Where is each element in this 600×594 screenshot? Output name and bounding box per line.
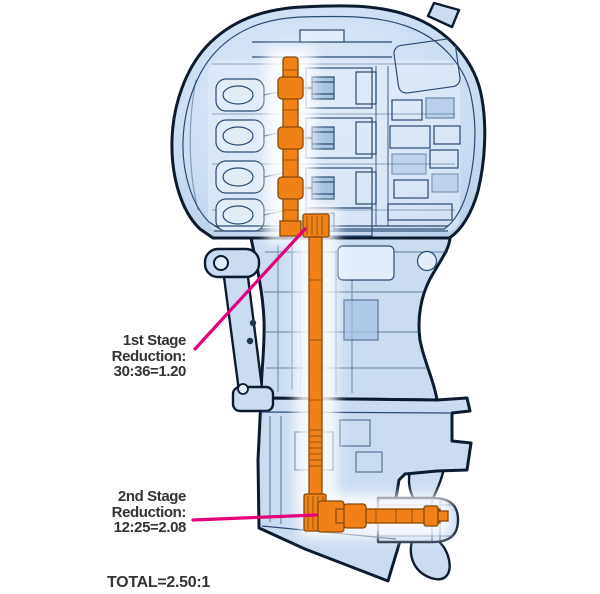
callout-stage2-line1: 2nd Stage: [64, 489, 186, 505]
callout-stage1-line2: Reduction:: [64, 349, 186, 365]
callout-stage2-line2: Reduction:: [64, 505, 186, 521]
callout-stage1-line1: 1st Stage: [64, 333, 186, 349]
callout-stage2-line3: 12:25=2.08: [64, 520, 186, 536]
callout-stage1: 1st Stage Reduction: 30:36=1.20: [64, 333, 186, 380]
total-ratio-label: TOTAL=2.50:1: [107, 574, 210, 592]
driveshaft: [309, 237, 322, 499]
cowling-handle: [428, 3, 459, 27]
callout-stage2: 2nd Stage Reduction: 12:25=2.08: [64, 489, 186, 536]
callout-stage1-line3: 30:36=1.20: [64, 364, 186, 380]
diagram-canvas: 1st Stage Reduction: 30:36=1.20 2nd Stag…: [0, 0, 600, 594]
crankshaft: [278, 57, 303, 223]
propeller-blade-bottom: [411, 537, 450, 579]
